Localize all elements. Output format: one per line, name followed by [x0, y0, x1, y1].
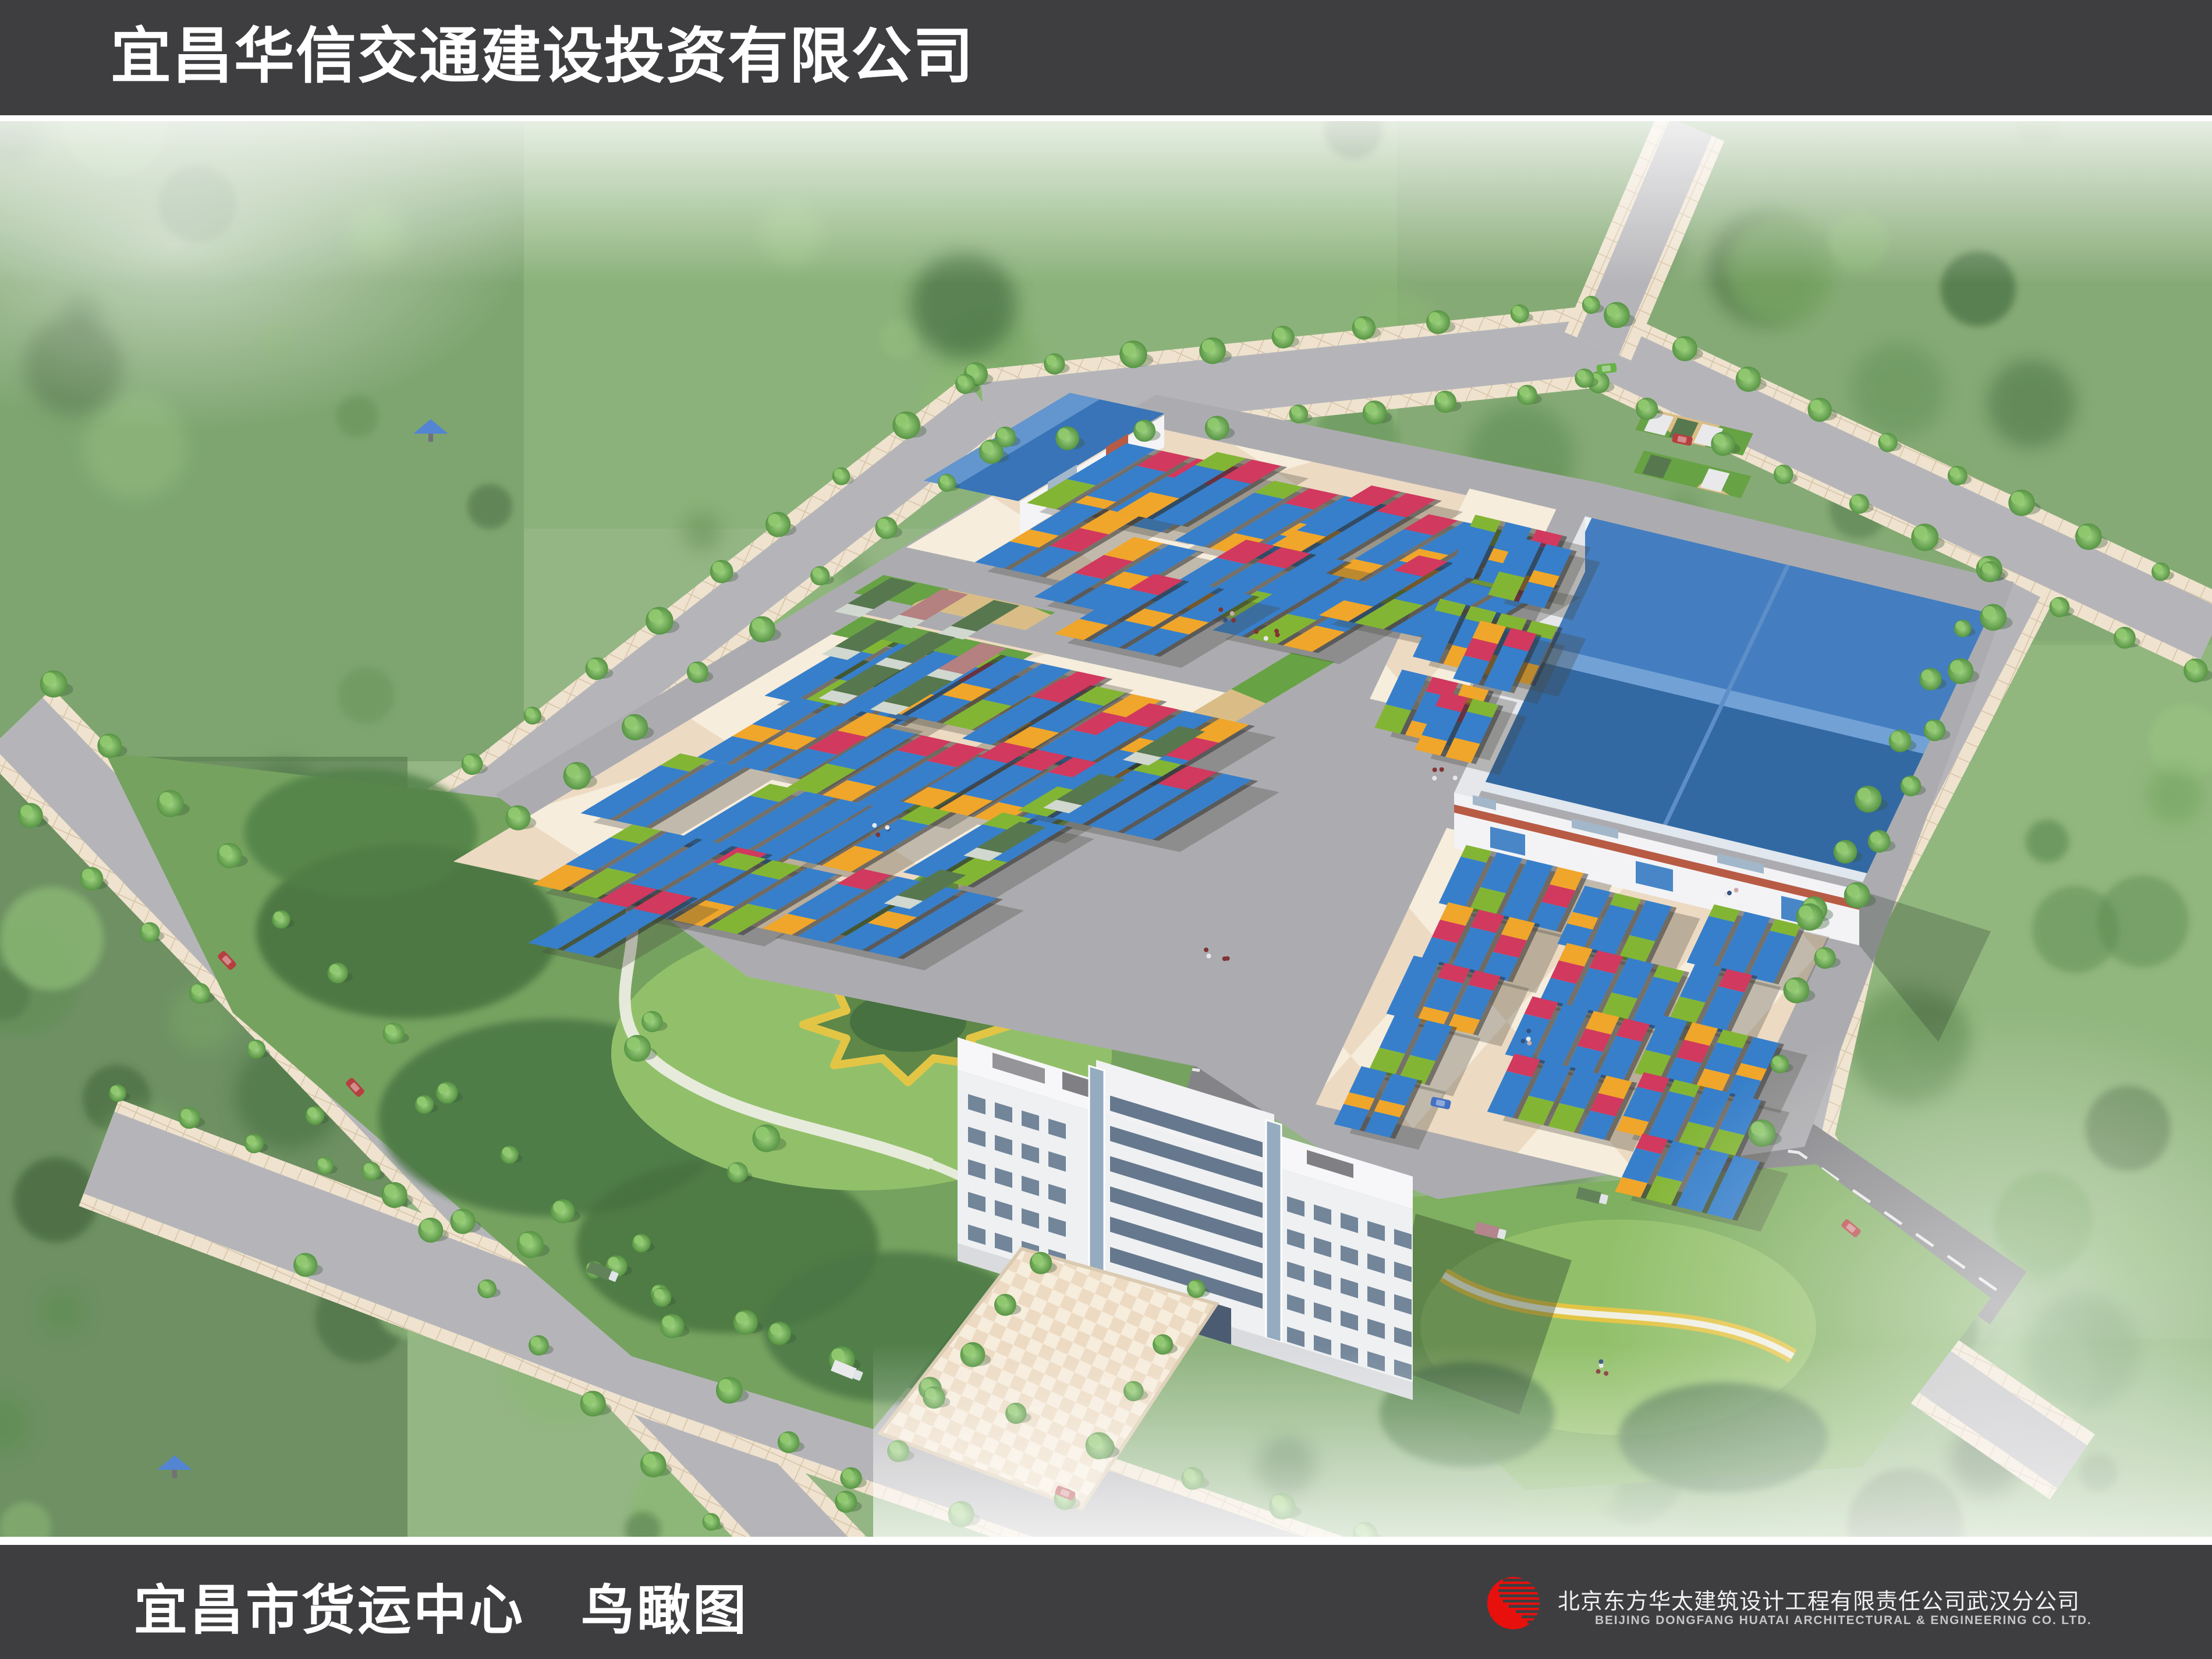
presentation-board: 宜昌华信交通建设投资有限公司 [0, 0, 2212, 1659]
design-company-name-cn: 北京东方华太建筑设计工程有限责任公司武汉分公司 [1558, 1583, 2080, 1615]
company-title: 宜昌华信交通建设投资有限公司 [111, 21, 974, 91]
header-banner: 宜昌华信交通建设投资有限公司 [0, 0, 2212, 115]
aerial-rendering-photo [0, 121, 2212, 1537]
design-company-name-en: BEIJING DONGFANG HUATAI ARCHITECTURAL & … [1595, 1614, 2092, 1628]
atmospheric-haze [0, 121, 2212, 1537]
drawing-title: 宜昌市货运中心 鸟瞰图 [134, 1567, 749, 1644]
design-company-logo-icon [1486, 1575, 1541, 1631]
